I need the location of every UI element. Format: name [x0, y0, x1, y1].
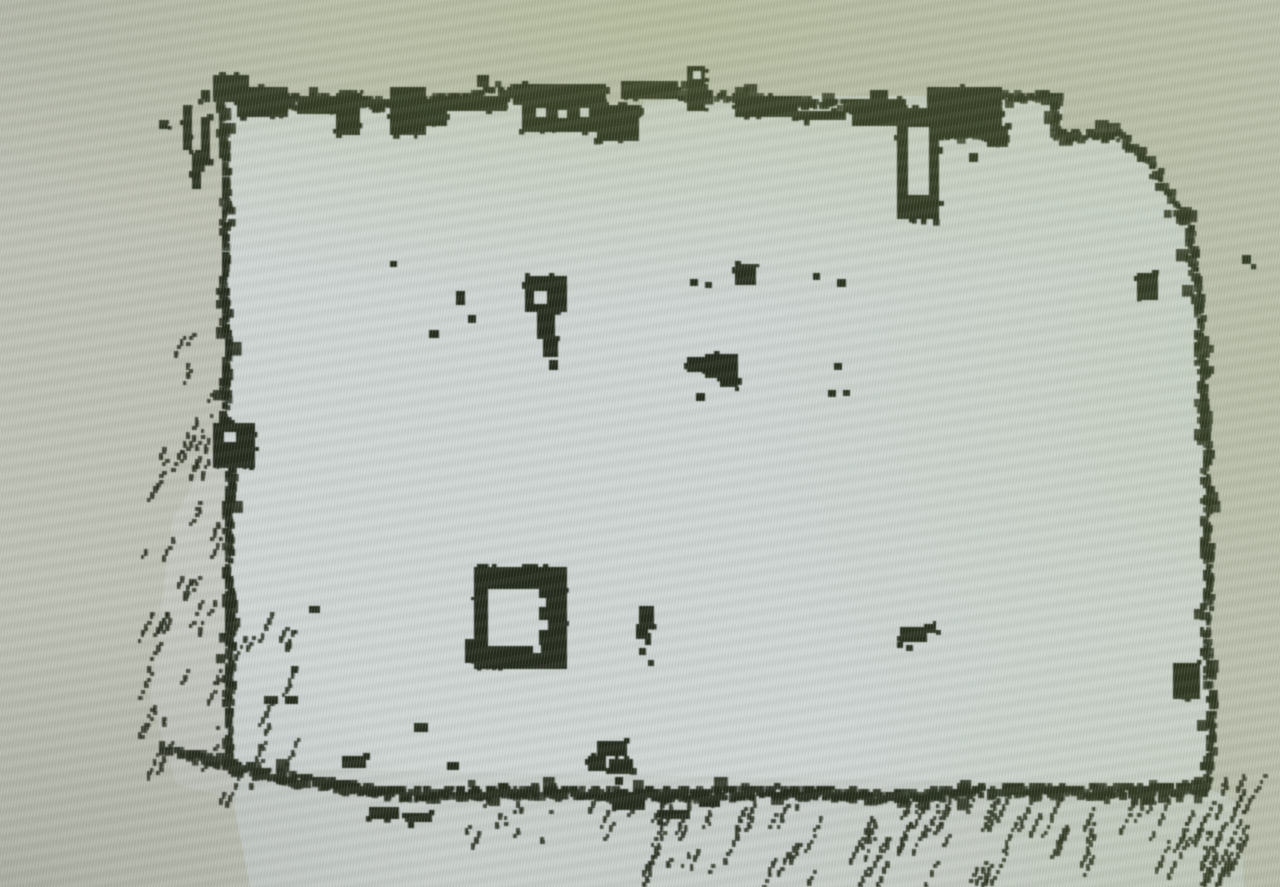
monitor-photo — [0, 0, 1280, 887]
occupancy-grid-map — [0, 0, 1280, 887]
